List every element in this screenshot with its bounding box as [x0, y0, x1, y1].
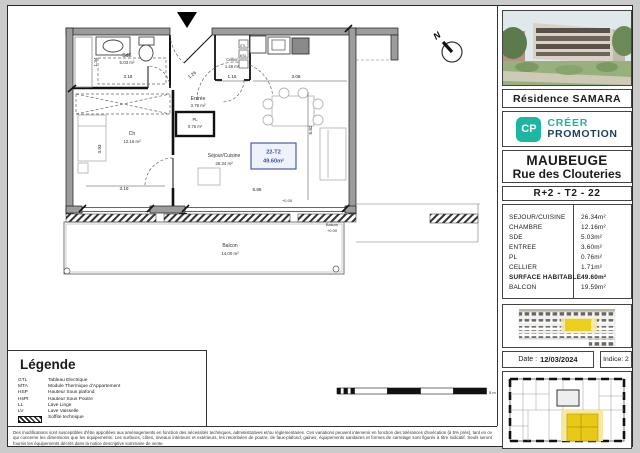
svg-text:49.60m²: 49.60m²: [263, 158, 284, 165]
svg-text:1.34: 1.34: [93, 57, 98, 66]
svg-text:26.34 m²: 26.34 m²: [215, 161, 233, 166]
windows: [82, 208, 345, 212]
building-photo: [502, 10, 632, 86]
svg-text:5.85: 5.85: [253, 187, 262, 192]
disclaimer: Des modifications sont susceptibles d'êt…: [8, 426, 497, 446]
svg-text:1.26: 1.26: [187, 70, 197, 80]
svg-text:14,00 m²: 14,00 m²: [221, 251, 239, 256]
svg-text:Balcon: Balcon: [326, 222, 338, 227]
street-label: Rue des Clouteries: [513, 168, 622, 181]
indice-box: Indice: 2: [600, 351, 632, 368]
svg-text:3.93: 3.93: [97, 144, 102, 153]
svg-text:3.08: 3.08: [292, 74, 301, 79]
soffite-hatch-swatch: [18, 416, 42, 423]
balcony: [64, 222, 344, 274]
svg-text:5.03 m²: 5.03 m²: [120, 60, 135, 65]
elevation-art: [503, 305, 631, 347]
logo-brand-bottom: PROMOTION: [547, 129, 617, 140]
city-label: MAUBEUGE: [526, 153, 607, 168]
unit-tag-box: 22-T2 49.60m²: [251, 143, 296, 169]
svg-text:3.10: 3.10: [120, 186, 129, 191]
svg-text:Ch: Ch: [129, 131, 136, 137]
svg-text:Balcon: Balcon: [222, 243, 238, 249]
svg-text:Séjour/Cuisine: Séjour/Cuisine: [208, 153, 241, 159]
table-row: SDE5.03m²: [509, 233, 629, 243]
svg-text:1.46 m²: 1.46 m²: [225, 64, 240, 69]
key-plan: [502, 371, 632, 449]
north-arrow-icon: N: [431, 29, 462, 62]
svg-text:GTL: GTL: [240, 44, 246, 48]
date-box: Date : 12/03/2024: [502, 351, 594, 368]
table-row: PL0.76m²: [509, 253, 629, 263]
unit-reference: R+2 - T2 - 22: [502, 186, 632, 201]
legend: Légende GTLTableau Electrique MTAModule …: [8, 350, 207, 426]
residence-name: Résidence SAMARA: [502, 89, 632, 108]
elevation-thumbnail: [502, 304, 632, 348]
svg-text:5.82: 5.82: [308, 125, 313, 134]
svg-text:1.15: 1.15: [228, 74, 237, 79]
unit-reference-label: R+2 - T2 - 22: [534, 188, 601, 199]
scale-bar: 5 m: [337, 388, 496, 395]
svg-text:3.18: 3.18: [124, 74, 133, 79]
svg-text:PL: PL: [192, 117, 198, 122]
creer-promotion-icon: CP: [516, 117, 541, 142]
svg-text:3.76 m²: 3.76 m²: [191, 103, 206, 108]
date-value: 12/03/2024: [540, 355, 578, 364]
svg-text:0.76 m²: 0.76 m²: [188, 124, 203, 129]
table-row: BALCON19.59m²: [509, 283, 629, 293]
legend-item-soffite: Soffite technique: [18, 415, 196, 426]
disclaimer-text: Des modifications sont susceptibles d'êt…: [13, 430, 492, 447]
table-row: SEJOUR/CUISINE26.34m²: [509, 213, 629, 223]
svg-text:+0.00: +0.00: [327, 228, 338, 233]
promoter-logo: CP CRÉER PROMOTION: [502, 111, 632, 147]
svg-text:N: N: [431, 29, 442, 41]
svg-text:12.16 m²: 12.16 m²: [123, 139, 141, 144]
plan-sheet: { "plan": { "north": "N", "scale": "5 m"…: [0, 0, 640, 453]
table-row-surface-habitable: SURFACE HABITABLE49.60m²: [509, 273, 629, 283]
building-photo-art: [503, 11, 631, 85]
residence-label: Résidence SAMARA: [513, 93, 621, 105]
svg-text:+0.00: +0.00: [282, 198, 293, 203]
table-row: ENTREE3.60m²: [509, 243, 629, 253]
svg-text:SdE: SdE: [122, 53, 132, 59]
legend-title: Légende: [20, 357, 196, 372]
table-row: CELLIER1.71m²: [509, 263, 629, 273]
entrance-marker-icon: [177, 12, 197, 28]
svg-text:5 m: 5 m: [489, 390, 496, 395]
svg-text:22-T2: 22-T2: [266, 150, 281, 156]
areas-table: SEJOUR/CUISINE26.34m² CHAMBRE12.16m² SDE…: [502, 204, 632, 299]
logo-wordmark: CRÉER PROMOTION: [547, 118, 617, 140]
project-address: MAUBEUGE Rue des Clouteries: [502, 150, 632, 183]
indice-value: Indice: 2: [603, 356, 629, 363]
svg-text:MTA: MTA: [240, 54, 247, 58]
key-plan-art: [503, 372, 631, 448]
svg-text:Cellier: Cellier: [226, 57, 238, 62]
table-row: CHAMBRE12.16m²: [509, 223, 629, 233]
date-label: Date :: [518, 356, 537, 363]
svg-text:Entrée: Entrée: [191, 96, 206, 102]
